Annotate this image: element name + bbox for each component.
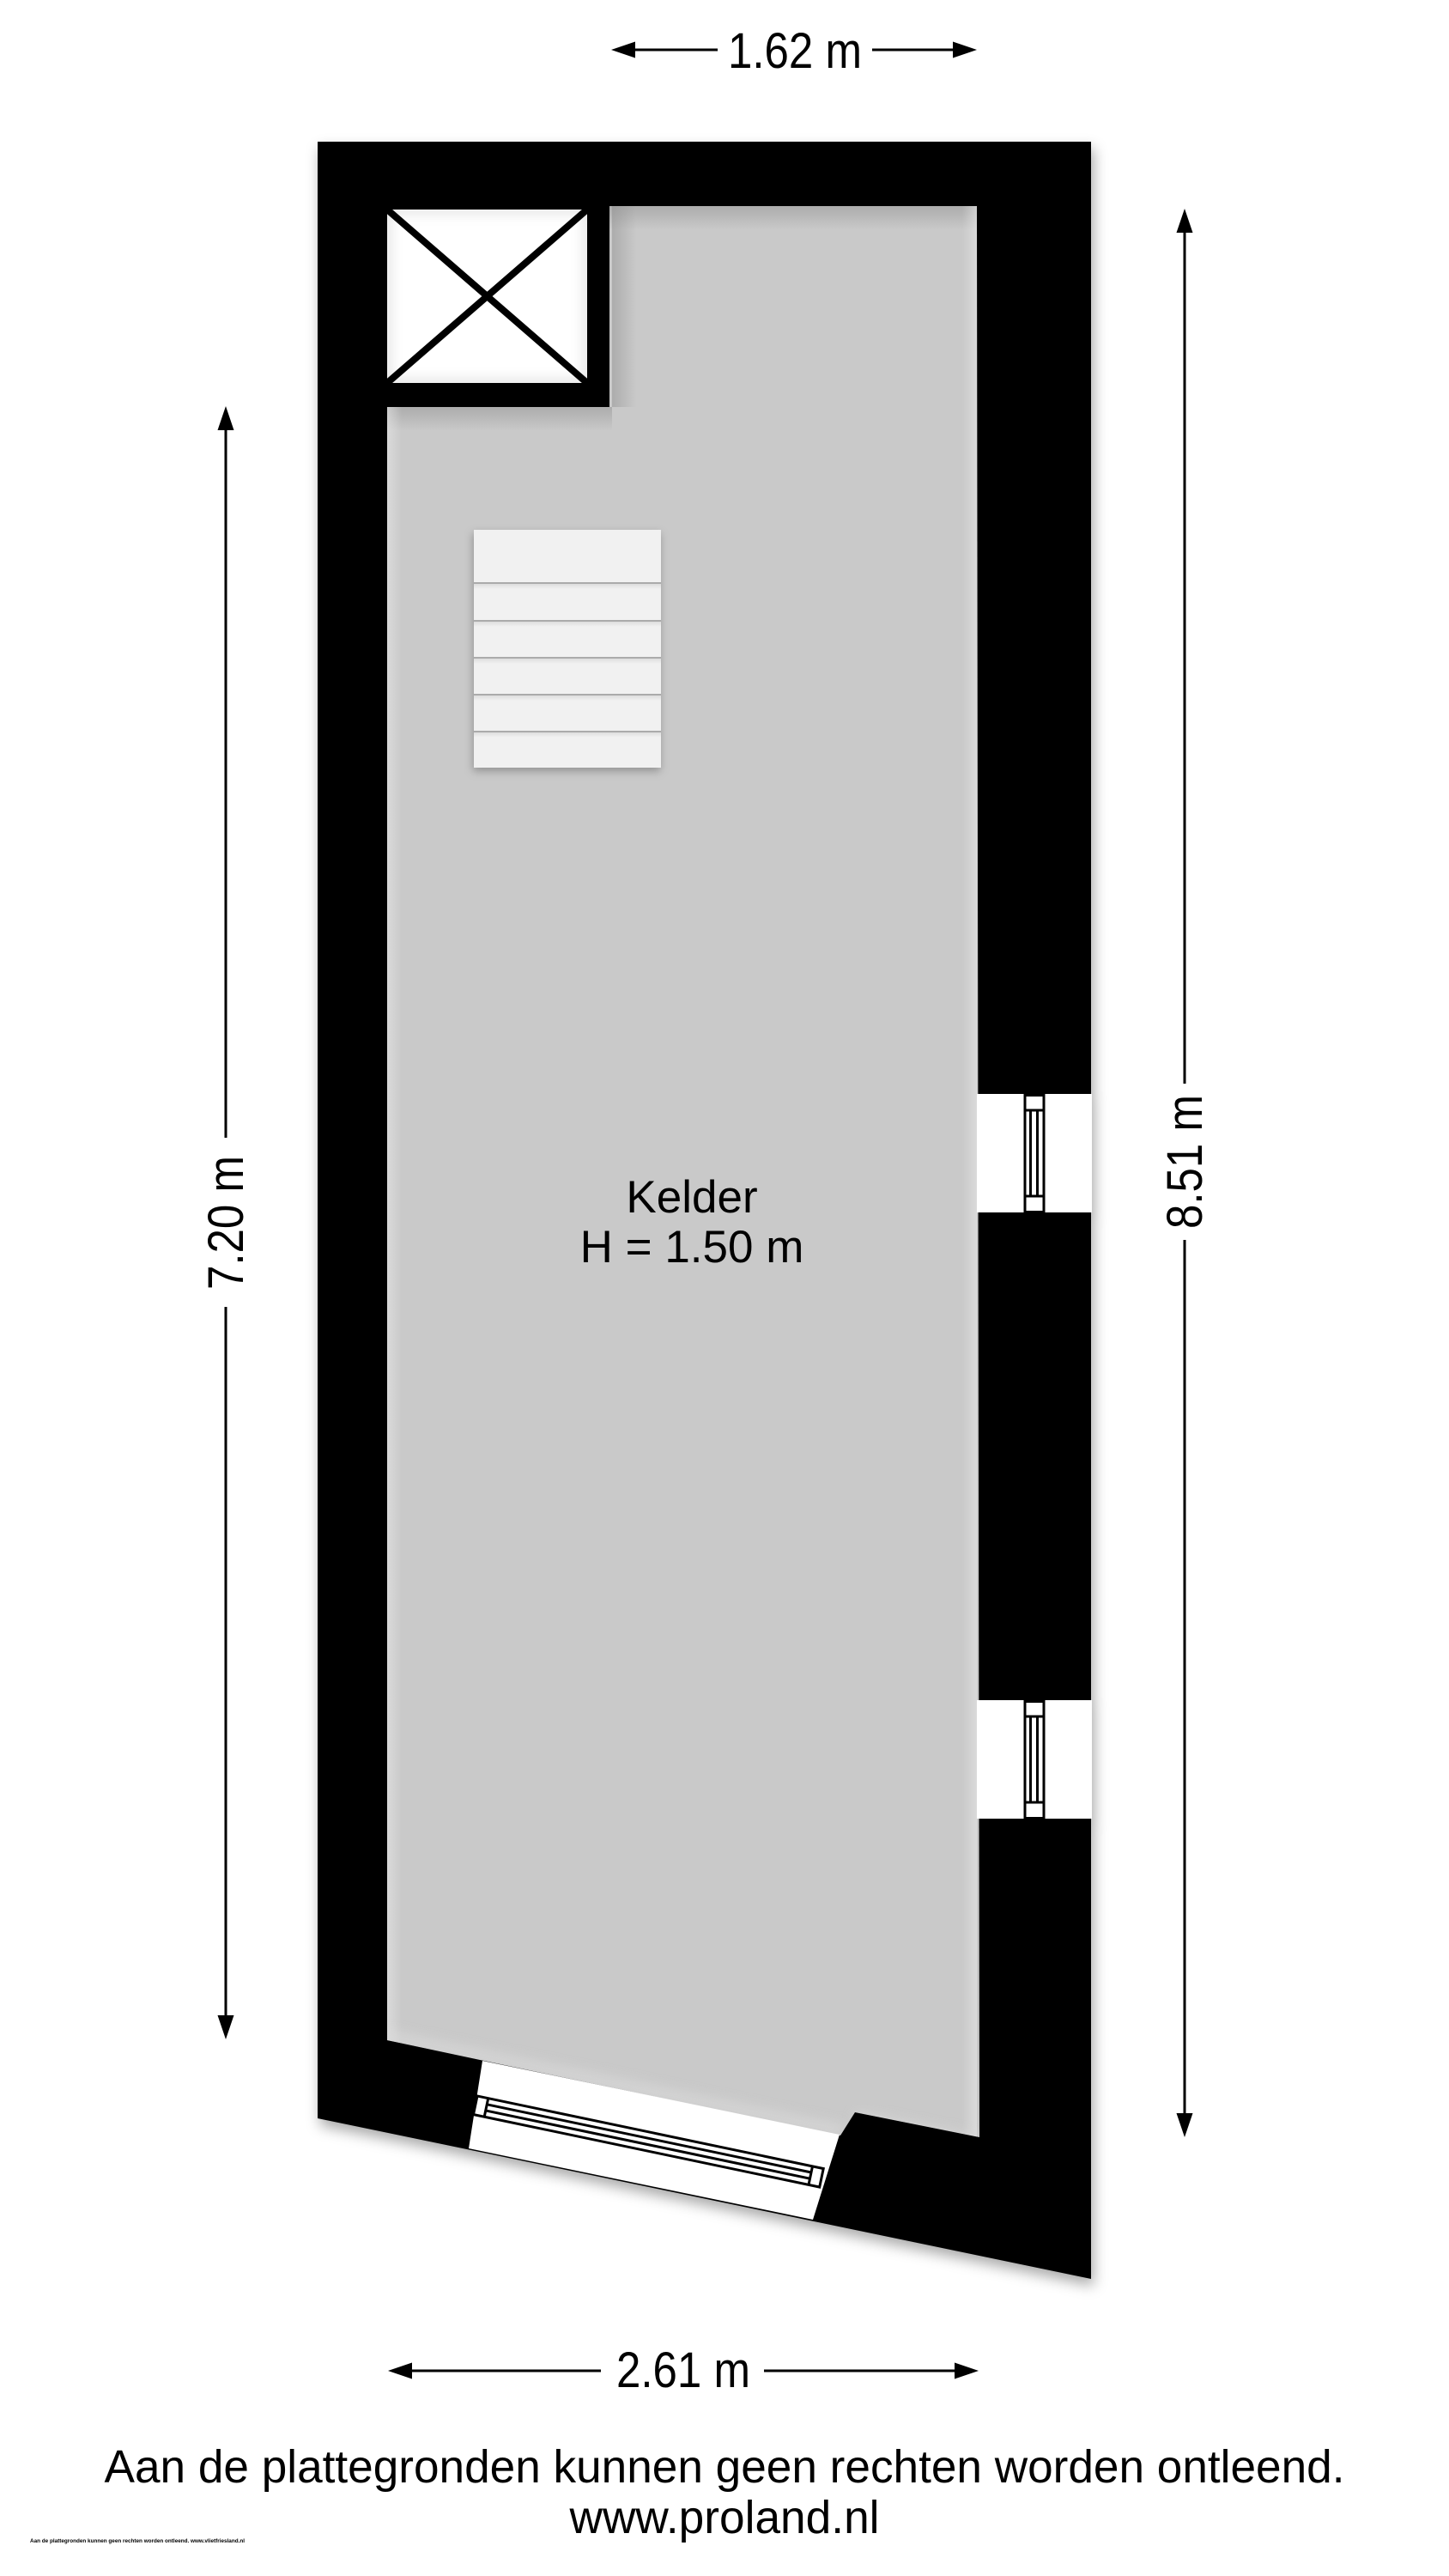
svg-text:www.proland.nl: www.proland.nl <box>569 2492 880 2543</box>
svg-text:7.20 m: 7.20 m <box>198 1156 254 1290</box>
svg-text:2.61 m: 2.61 m <box>616 2342 750 2398</box>
svg-text:1.62 m: 1.62 m <box>728 23 862 79</box>
svg-text:Aan de plattegronden kunnen ge: Aan de plattegronden kunnen geen rechten… <box>30 2538 245 2544</box>
svg-text:H = 1.50 m: H = 1.50 m <box>580 1222 804 1273</box>
svg-text:8.51 m: 8.51 m <box>1157 1095 1213 1229</box>
svg-text:Kelder: Kelder <box>626 1172 757 1223</box>
svg-text:Aan de plattegronden kunnen ge: Aan de plattegronden kunnen geen rechten… <box>105 2441 1345 2493</box>
